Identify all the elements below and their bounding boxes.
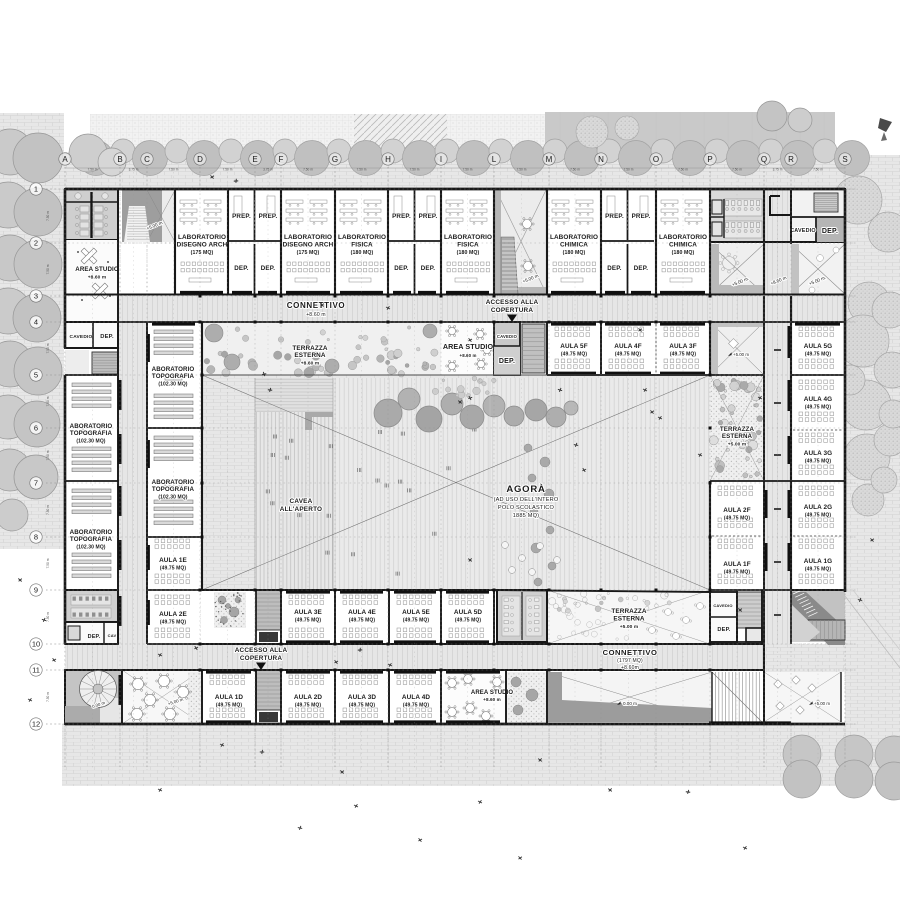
svg-text:LABORATORIO: LABORATORIO [444,234,492,241]
svg-text:3: 3 [34,292,38,301]
svg-text:CAVEDIO: CAVEDIO [790,228,816,234]
svg-text:(49.75 MQ): (49.75 MQ) [561,352,588,358]
svg-text:7.50 m: 7.50 m [517,168,527,172]
svg-text:(49.75 MQ): (49.75 MQ) [615,352,642,358]
svg-text:+5.00 m: +5.00 m [814,701,830,706]
svg-text:(49.75 MQ): (49.75 MQ) [349,618,376,624]
svg-text:(49.75 MQ): (49.75 MQ) [349,703,376,709]
svg-text:CAVEDIO: CAVEDIO [713,603,732,608]
svg-text:LABORATORIO: LABORATORIO [338,234,386,241]
svg-text:7.50 m: 7.50 m [46,612,50,622]
svg-text:ESTERNA: ESTERNA [294,352,326,359]
svg-text:CAVEDIO: CAVEDIO [70,334,93,340]
svg-text:11: 11 [32,666,40,675]
svg-text:4: 4 [34,318,38,327]
svg-text:7.50 m: 7.50 m [46,396,50,406]
svg-text:7.50 m: 7.50 m [46,343,50,353]
svg-text:LABORATORIO: LABORATORIO [550,234,598,241]
svg-text:LABORATORIO: LABORATORIO [659,234,707,241]
svg-text:DEP.: DEP. [499,358,515,365]
svg-text:AULA 5E: AULA 5E [402,609,430,616]
svg-text:DEP.: DEP. [394,265,409,272]
svg-text:(49.75 MQ): (49.75 MQ) [160,620,187,626]
svg-text:R: R [788,155,794,164]
svg-text:1885 MQ): 1885 MQ) [513,513,539,519]
svg-text:DEP.: DEP. [717,627,730,633]
svg-text:(1797 MQ): (1797 MQ) [617,658,643,664]
svg-text:+8.60 m: +8.60 m [301,360,319,366]
svg-text:DEP.: DEP. [634,265,649,272]
svg-text:AULA 3G: AULA 3G [804,450,833,457]
svg-text:CAV: CAV [108,633,117,638]
svg-text:CHIMICA: CHIMICA [560,241,588,248]
svg-text:ALL'APERTO: ALL'APERTO [280,506,322,513]
svg-text:ACCESSO ALLA: ACCESSO ALLA [486,299,539,306]
svg-text:F: F [279,155,284,164]
svg-text:7.50 m: 7.50 m [570,168,580,172]
svg-text:(49.75 MQ): (49.75 MQ) [403,618,430,624]
svg-text:3.75 m: 3.75 m [129,168,139,172]
svg-text:(49.75 MQ): (49.75 MQ) [216,703,243,709]
svg-text:TERRAZZA: TERRAZZA [292,345,328,352]
svg-text:B: B [117,155,122,164]
svg-text:DEP.: DEP. [88,634,101,640]
svg-text:7.50 m: 7.50 m [169,168,179,172]
svg-text:AGORÀ: AGORÀ [506,484,545,495]
svg-text:S: S [842,155,847,164]
svg-text:(175 MQ): (175 MQ) [191,250,214,256]
svg-text:ABORATORIO: ABORATORIO [152,479,195,486]
svg-text:3.75 m: 3.75 m [263,168,273,172]
svg-text:AULA 2F: AULA 2F [723,507,750,514]
svg-text:DEP.: DEP. [421,265,436,272]
svg-text:CONNETTIVO: CONNETTIVO [287,301,345,310]
svg-text:7: 7 [34,479,38,488]
svg-text:(102.30 MQ): (102.30 MQ) [76,438,105,444]
svg-text:AREA STUDIO: AREA STUDIO [75,266,119,273]
svg-text:AULA 5F: AULA 5F [560,343,587,350]
svg-text:7.50 m: 7.50 m [46,450,50,460]
svg-text:10: 10 [32,640,40,649]
svg-text:5: 5 [34,371,38,380]
svg-text:N: N [598,155,604,164]
svg-text:(49.75 MQ): (49.75 MQ) [805,567,832,573]
svg-text:2: 2 [34,239,38,248]
svg-text:E: E [252,155,257,164]
svg-text:7.50 m: 7.50 m [46,505,50,515]
svg-text:(102.30 MQ): (102.30 MQ) [158,494,187,500]
svg-text:H: H [385,155,391,164]
svg-text:POLO SCOLASTICO: POLO SCOLASTICO [498,505,555,511]
svg-text:7.50 m: 7.50 m [46,264,50,274]
svg-text:AULA 4D: AULA 4D [402,694,430,701]
svg-text:TERRAZZA: TERRAZZA [611,608,647,615]
svg-text:(102.30 MQ): (102.30 MQ) [158,381,187,387]
svg-text:LABORATORIO: LABORATORIO [178,234,226,241]
svg-text:AREA STUDIO: AREA STUDIO [471,690,513,696]
svg-text:AULA 3E: AULA 3E [294,609,322,616]
svg-text:7.50 m: 7.50 m [223,168,233,172]
svg-text:+8.60 m: +8.60 m [306,312,326,318]
svg-text:FISICA: FISICA [457,241,479,248]
svg-text:+8.60 m: +8.60 m [460,353,477,358]
svg-text:7.50 m: 7.50 m [88,168,98,172]
svg-text:COPERTURA: COPERTURA [491,307,533,314]
svg-text:7.50 m: 7.50 m [624,168,634,172]
svg-text:9: 9 [34,586,38,595]
svg-text:C: C [144,155,150,164]
svg-text:DISEGNO ARCH: DISEGNO ARCH [177,241,228,248]
svg-text:AREA STUDIO: AREA STUDIO [443,342,494,351]
svg-text:(102.30 MQ): (102.30 MQ) [76,544,105,550]
svg-text:(AD USO DELL'INTERO: (AD USO DELL'INTERO [494,497,559,503]
svg-text:P: P [707,155,712,164]
svg-text:7.50 m: 7.50 m [357,168,367,172]
svg-text:+8.60 m: +8.60 m [88,274,106,280]
svg-text:G: G [332,155,338,164]
svg-text:AULA 3D: AULA 3D [348,694,376,701]
svg-text:Q: Q [761,155,767,164]
svg-text:7.50 m: 7.50 m [410,168,420,172]
svg-text:DEP.: DEP. [822,228,838,235]
svg-text:AULA 2D: AULA 2D [294,694,322,701]
svg-text:+8.60 m: +8.60 m [483,697,501,702]
svg-text:7.50 m: 7.50 m [732,168,742,172]
svg-text:ABORATORIO: ABORATORIO [70,529,113,536]
svg-text:D: D [197,155,203,164]
svg-text:LABORATORIO: LABORATORIO [284,234,332,241]
svg-text:M: M [546,155,553,164]
svg-text:O: O [653,155,659,164]
svg-text:AULA 4F: AULA 4F [614,343,641,350]
svg-text:1: 1 [34,185,38,194]
svg-text:FISICA: FISICA [351,241,373,248]
svg-text:ABORATORIO: ABORATORIO [70,423,113,430]
svg-text:TOPOGRAFIA: TOPOGRAFIA [70,430,113,437]
svg-text:CAVEDIO: CAVEDIO [497,334,518,339]
svg-text:COPERTURA: COPERTURA [240,655,282,662]
svg-text:8: 8 [34,533,38,542]
svg-text:DEP.: DEP. [100,334,114,340]
svg-text:7.50 m: 7.50 m [463,168,473,172]
svg-text:+5.00 m: +5.00 m [733,352,749,357]
svg-text:TOPOGRAFIA: TOPOGRAFIA [152,373,195,380]
svg-text:ESTERNA: ESTERNA [613,615,645,622]
svg-text:+5.00 m: +5.00 m [728,441,746,447]
svg-text:+5.00 m: +5.00 m [620,624,638,630]
svg-text:CONNETTIVO: CONNETTIVO [603,648,658,657]
svg-text:(175 MQ): (175 MQ) [297,250,320,256]
svg-text:DEP.: DEP. [261,265,276,272]
svg-text:(180 MQ): (180 MQ) [672,250,695,256]
svg-text:I: I [440,155,442,164]
svg-text:(49.75 MQ): (49.75 MQ) [455,618,482,624]
svg-text:+8.60m: +8.60m [621,665,639,671]
svg-text:ACCESSO ALLA: ACCESSO ALLA [235,647,288,654]
svg-text:A: A [62,155,68,164]
svg-text:7.50 m: 7.50 m [813,168,823,172]
svg-text:(180 MQ): (180 MQ) [351,250,374,256]
svg-text:DEP.: DEP. [607,265,622,272]
svg-text:TOPOGRAFIA: TOPOGRAFIA [152,486,195,493]
svg-text:DEP.: DEP. [234,265,249,272]
svg-text:12: 12 [32,720,40,729]
svg-text:(49.75 MQ): (49.75 MQ) [295,618,322,624]
svg-text:AULA 1D: AULA 1D [215,694,243,701]
svg-text:3.75 m: 3.75 m [773,168,783,172]
svg-text:L: L [492,155,497,164]
svg-text:6: 6 [34,424,38,433]
svg-text:(180 MQ): (180 MQ) [563,250,586,256]
svg-text:7.50 m: 7.50 m [46,558,50,568]
svg-text:7.50 m: 7.50 m [46,211,50,221]
svg-text:(49.75 MQ): (49.75 MQ) [160,566,187,572]
svg-text:7.50 m: 7.50 m [678,168,688,172]
svg-text:7.50 m: 7.50 m [46,692,50,702]
svg-text:AULA 4E: AULA 4E [348,609,376,616]
svg-text:ABORATORIO: ABORATORIO [152,366,195,373]
svg-text:(180 MQ): (180 MQ) [457,250,480,256]
svg-text:AULA 5D: AULA 5D [454,609,482,616]
svg-text:(49.75 MQ): (49.75 MQ) [403,703,430,709]
svg-text:CAVEA: CAVEA [290,498,313,505]
svg-text:0.00 m: 0.00 m [623,701,637,706]
svg-text:7.50 m: 7.50 m [303,168,313,172]
